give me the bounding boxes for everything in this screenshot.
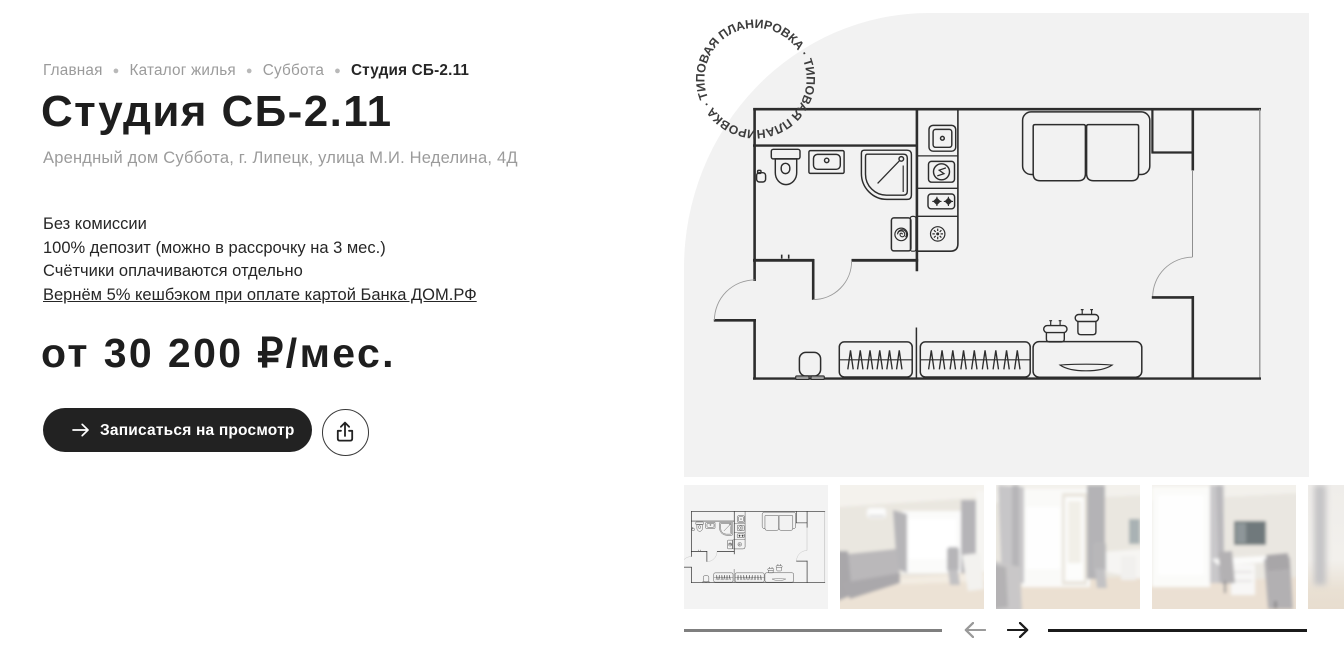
svg-text:ТИПОВАЯ ПЛАНИРОВКА · ТИПОВАЯ П: ТИПОВАЯ ПЛАНИРОВКА · ТИПОВАЯ ПЛАНИРОВКА … xyxy=(693,17,817,141)
